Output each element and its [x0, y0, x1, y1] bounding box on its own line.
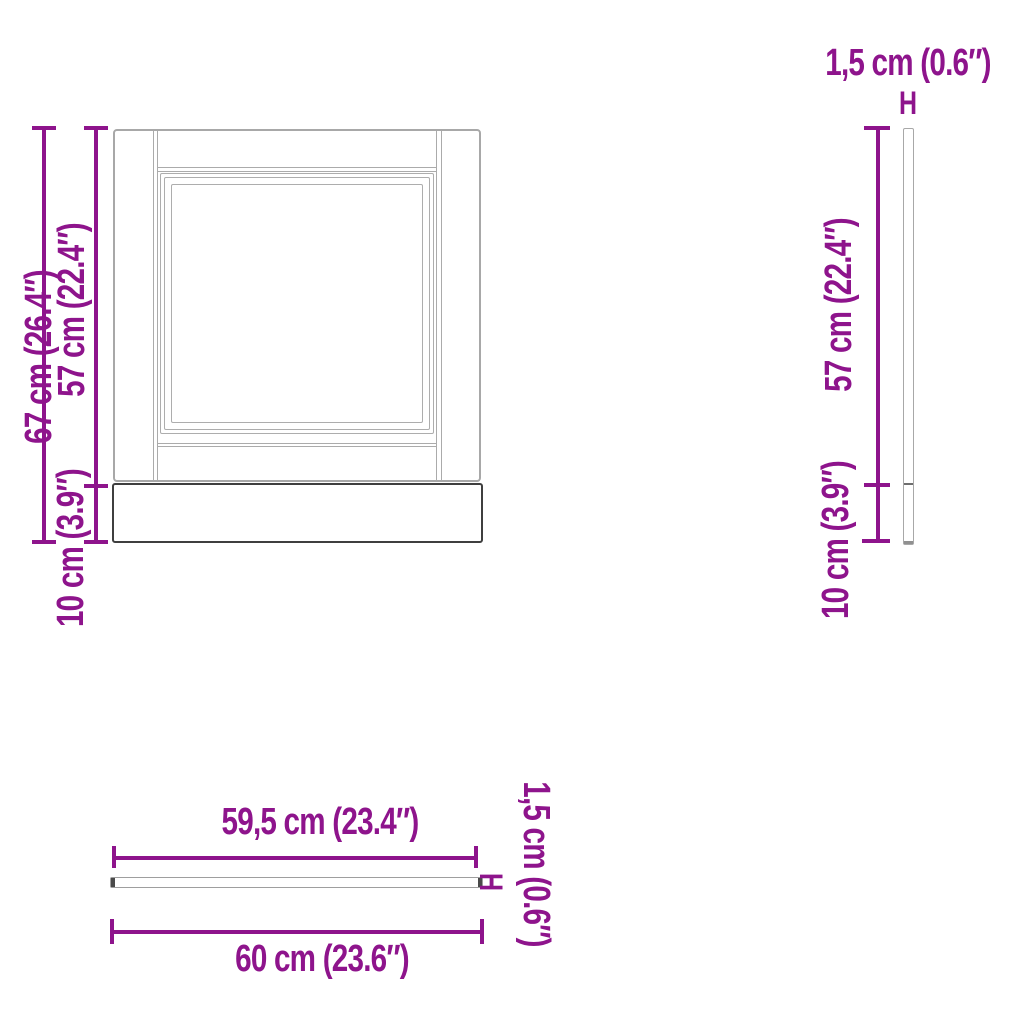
dim-tick: [84, 126, 108, 130]
side-panel-bottom-cap: [904, 541, 913, 544]
front-rail-bottom-line: [157, 443, 437, 444]
product-dimension-diagram: 67 cm (26.4″) 57 cm (22.4″) 10 cm (3.9″)…: [0, 0, 1024, 1024]
dim-tick: [474, 846, 478, 868]
dim-line-panel-and-plinth: [94, 128, 98, 544]
dim-tick: [32, 126, 56, 130]
front-plinth-outline: [112, 483, 483, 543]
label-top-thickness: 1,5 cm (0.6″): [516, 739, 556, 989]
dim-tick: [864, 126, 890, 130]
label-plinth-height: 10 cm (3.9″): [51, 423, 91, 673]
front-stile-right-line: [441, 131, 442, 480]
label-panel-width: 59,5 cm (23.4″): [195, 802, 445, 842]
dim-line-panel-width: [114, 856, 478, 860]
front-rail-bottom-line: [157, 446, 437, 447]
dim-tick: [864, 483, 890, 487]
label-side-plinth-height: 10 cm (3.9″): [816, 415, 856, 665]
label-panel-height: 57 cm (22.4″): [52, 185, 92, 435]
top-thickness-marker: H: [476, 870, 506, 893]
top-panel-left-cap: [111, 878, 115, 887]
front-stile-left-line: [157, 131, 158, 480]
front-rail-top-line: [157, 167, 437, 168]
front-panel-bevel-inner: [171, 184, 423, 423]
front-stile-right-line: [436, 131, 437, 480]
side-thickness-marker: H: [896, 88, 919, 118]
dim-line-total-width: [112, 930, 484, 934]
front-rail-top-line: [157, 171, 437, 172]
dim-tick: [110, 919, 114, 944]
label-total-width: 60 cm (23.6″): [197, 939, 447, 979]
dim-tick: [480, 919, 484, 944]
dim-line-side-height: [876, 128, 880, 543]
dim-tick: [862, 539, 890, 543]
label-side-panel-height: 57 cm (22.4″): [819, 180, 859, 430]
dim-tick: [112, 846, 116, 868]
front-stile-left-line: [153, 131, 154, 480]
side-panel-divider: [904, 483, 913, 485]
top-panel-strip: [110, 877, 483, 888]
label-side-thickness: 1,5 cm (0.6″): [783, 43, 1024, 83]
